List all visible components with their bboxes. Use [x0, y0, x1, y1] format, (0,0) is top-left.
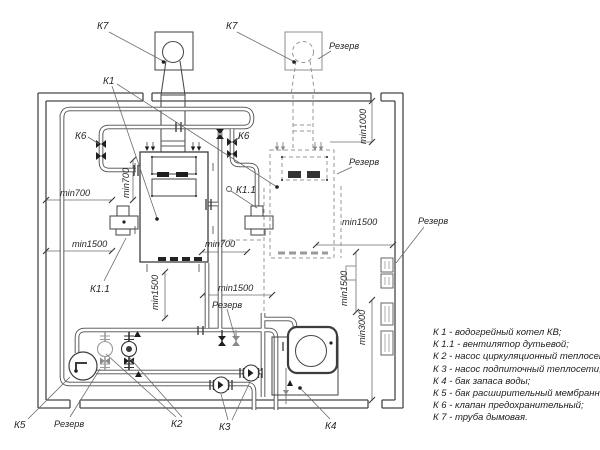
chimney-k7-left: [155, 32, 193, 152]
legend-item-k4: К 4 - бак запаса воды;: [433, 376, 600, 388]
dim-min1500-right-vert: min1500: [339, 270, 349, 306]
legend-item-k7: К 7 - труба дымовая.: [433, 412, 600, 424]
dim-min700-mid: min700: [205, 239, 236, 249]
dim-min700-left-vert: min700: [121, 167, 131, 198]
legend-item-k5: К 5 - бак расширительный мембранный;: [433, 388, 600, 400]
label-k11-bottom: К1.1: [90, 284, 110, 295]
dim-min1500-mid: min1500: [218, 283, 254, 293]
reserve-label-boiler: Резерв: [349, 157, 379, 167]
fan-k11-left: [110, 206, 138, 235]
electrical-panels: [381, 258, 393, 355]
reserve-label-panels: Резерв: [418, 216, 448, 226]
legend-item-k1: К 1 - водогрейный котел КВ;: [433, 327, 600, 339]
label-k3: К3: [219, 422, 231, 433]
dim-min700-left: min700: [60, 188, 91, 198]
legend-item-k11: К 1.1 - вентилятор дутьевой;: [433, 339, 600, 351]
chimney-k7-reserve: [285, 32, 322, 150]
legend-item-k3: К 3 - насос подпиточный теплосети;: [433, 364, 600, 376]
pump-k2-reserve: [98, 332, 113, 370]
reserve-label-valves: Резерв: [212, 300, 242, 310]
tank-k4: [272, 327, 338, 395]
dim-min1500-mid-vert: min1500: [150, 274, 160, 310]
dim-min1000-vert: min1000: [358, 108, 368, 144]
label-k2: К2: [171, 419, 183, 430]
equipment-legend: К 1 - водогрейный котел КВ; К 1.1 - вент…: [433, 327, 600, 425]
label-k1: К1: [103, 76, 114, 87]
legend-item-k6: К 6 - клапан предохранительный;: [433, 400, 600, 412]
safety-valves-k6: [96, 129, 237, 160]
label-k6-right: К6: [238, 131, 250, 142]
dim-min3000-vert: min3000: [357, 309, 367, 345]
reserve-label-pump-k2: Резерв: [54, 419, 84, 429]
label-k7-right: К7: [226, 21, 238, 32]
dim-min1500-right: min1500: [342, 217, 378, 227]
boiler-top-valve-icons: [145, 142, 201, 151]
boiler-reserve: [270, 142, 334, 258]
fan-k11-mid: [245, 206, 273, 235]
tank-k5: [69, 352, 97, 380]
pump-k2-active: [122, 332, 137, 370]
label-k4: К4: [325, 421, 337, 432]
reserve-label-chimney: Резерв: [329, 41, 359, 51]
label-k11-mid: К1.1: [236, 185, 256, 196]
legend-item-k2: К 2 - насос циркуляционный теплосети;: [433, 351, 600, 363]
dim-min1500-left: min1500: [72, 239, 108, 249]
label-k5: К5: [14, 420, 26, 431]
label-k6-left: К6: [75, 131, 87, 142]
label-k7-left: К7: [97, 21, 109, 32]
